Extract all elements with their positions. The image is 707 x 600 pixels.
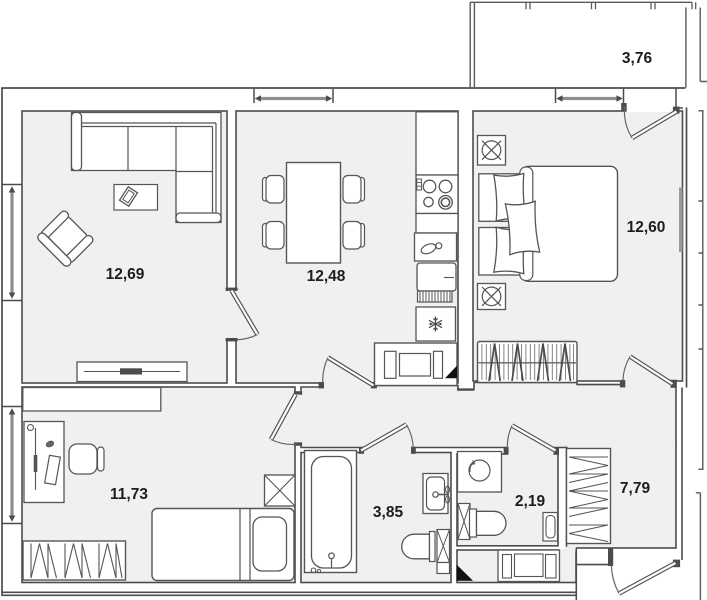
- svg-text:3,76: 3,76: [622, 50, 653, 67]
- svg-text:12,69: 12,69: [106, 266, 145, 283]
- svg-text:12,48: 12,48: [307, 268, 346, 285]
- svg-text:3,85: 3,85: [373, 504, 404, 521]
- svg-text:11,73: 11,73: [110, 486, 148, 503]
- svg-text:2,19: 2,19: [515, 493, 546, 510]
- svg-text:12,60: 12,60: [627, 219, 666, 236]
- svg-text:7,79: 7,79: [620, 480, 651, 497]
